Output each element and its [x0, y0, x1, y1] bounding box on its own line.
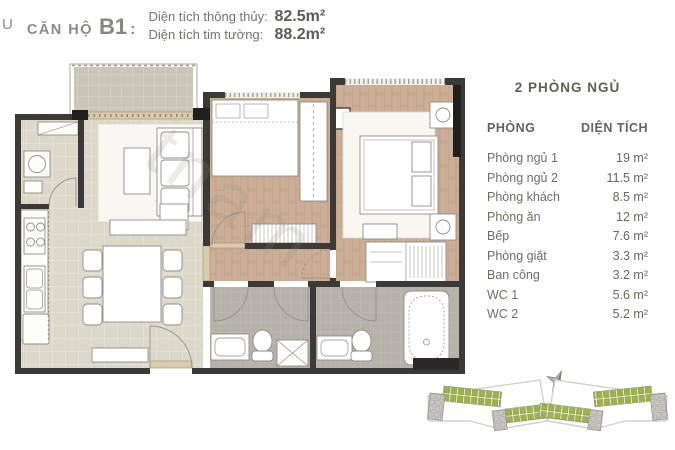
- room-name: Phòng giặt: [487, 247, 547, 267]
- room-area: 3.3 m²: [613, 247, 648, 267]
- table-title: 2 PHÒNG NGỦ: [487, 80, 648, 95]
- table-row: Phòng ngủ 211.5 m²: [487, 169, 648, 189]
- table-row: WC 25.2 m²: [487, 305, 648, 325]
- building-wing-right: [539, 380, 668, 431]
- pillow: [412, 142, 431, 172]
- table-row: Phòng ăn12 m²: [487, 208, 648, 228]
- balcony: [70, 64, 197, 116]
- sink-icon: [24, 266, 45, 312]
- room-area-table: 2 PHÒNG NGỦ PHÒNG DIỆN TÍCH Phòng ngủ 11…: [487, 80, 648, 325]
- room-area: 8.5 m²: [613, 188, 648, 208]
- room-name: WC 2: [487, 305, 518, 325]
- header: U CĂN HỘ B1 : Diện tích thông thủy: 82.5…: [0, 8, 325, 44]
- dining-table: [103, 246, 161, 322]
- room-name: Ban công: [487, 266, 540, 286]
- shoe-cabinet: [92, 348, 148, 362]
- room-name: WC 1: [487, 286, 518, 306]
- room-area: 19 m²: [616, 149, 648, 169]
- unit-code: B1: [99, 14, 127, 40]
- floorplan-page: { "header": { "edge_text": "U", "unit_la…: [0, 0, 675, 450]
- unit-title: CĂN HỘ B1 :: [27, 14, 136, 40]
- metric-value: 88.2m²: [275, 26, 326, 44]
- room-name: Phòng ngủ 2: [487, 169, 558, 189]
- room-area: 11.5 m²: [607, 169, 648, 189]
- unit-colon: :: [130, 21, 135, 39]
- table-row: Bếp7.6 m²: [487, 227, 648, 247]
- col-room: PHÒNG: [487, 121, 535, 135]
- room-area: 5.6 m²: [613, 286, 648, 306]
- table-header-row: PHÒNG DIỆN TÍCH: [487, 121, 648, 135]
- unit-label: CĂN HỘ: [27, 22, 93, 38]
- bathtub-icon: [404, 291, 449, 365]
- room-name: Phòng khách: [487, 188, 560, 208]
- metric-wall-area: Diện tích tim tường: 88.2m²: [149, 26, 326, 44]
- col-area: DIỆN TÍCH: [581, 121, 648, 135]
- site-plan: [420, 368, 675, 448]
- sideboard: [110, 220, 186, 235]
- vanity-sink-icon: [317, 336, 352, 360]
- room-area: 12 m²: [616, 208, 648, 228]
- dining-set: [83, 246, 182, 325]
- table-row: Phòng giặt3.3 m²: [487, 247, 648, 267]
- metric-label: Diện tích tim tường:: [149, 26, 271, 44]
- table-row: Phòng khách8.5 m²: [487, 188, 648, 208]
- area-metrics: Diện tích thông thủy: 82.5m² Diện tích t…: [149, 8, 326, 44]
- room-area: 7.6 m²: [613, 227, 648, 247]
- toilet-icon: [352, 330, 371, 352]
- table-row: WC 15.6 m²: [487, 286, 648, 306]
- room-name: Phòng ngủ 1: [487, 149, 558, 169]
- room-area: 5.2 m²: [613, 305, 648, 325]
- table-row: Ban công3.2 m²: [487, 266, 648, 286]
- metric-clear-area: Diện tích thông thủy: 82.5m²: [149, 8, 326, 26]
- metric-value: 82.5m²: [275, 8, 326, 26]
- nightstand: [430, 102, 456, 128]
- building-wing-left: [427, 380, 556, 431]
- toilet-icon: [253, 330, 272, 352]
- room-name: Bếp: [487, 227, 509, 247]
- clipped-edge-text: U: [2, 16, 13, 33]
- metric-label: Diện tích thông thủy:: [149, 8, 271, 26]
- floor-plan: tnam: [0, 52, 470, 382]
- nightstand: [430, 214, 456, 240]
- fridge-icon: [23, 314, 49, 344]
- kitchen-counter: [21, 210, 49, 344]
- bench: [363, 224, 397, 239]
- pillow: [412, 176, 431, 206]
- table-row: Phòng ngủ 119 m²: [487, 149, 648, 169]
- room-name: Phòng ăn: [487, 208, 541, 228]
- room-area: 3.2 m²: [613, 266, 648, 286]
